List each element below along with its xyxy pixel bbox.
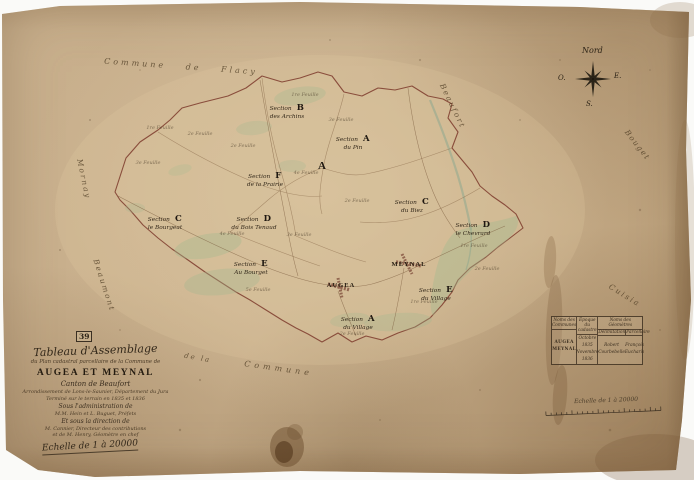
section-label-a-pin: Section A du Pin <box>336 127 370 152</box>
legend-col-communes: Noms des Communes AUGEA MEYNAL <box>552 317 577 364</box>
feuille-label: 3e Feuille <box>287 232 312 238</box>
section-letter-mark: A <box>318 160 326 172</box>
feuille-label: 2e Feuille <box>188 131 213 137</box>
feuille-label: 4e Feuille <box>294 170 319 176</box>
section-label-d-chevrard: Section D le Chevrard <box>455 213 490 238</box>
legend-col3-values: Robert Courbebelle François Eucharis <box>598 336 642 364</box>
section-label-d-bois-tenaud: Section D du Bois Tenaud <box>231 207 276 232</box>
legend-col3-header: Noms des Géomètres <box>598 317 642 330</box>
section-label-c-bourgeat: Section C le Bourgeat <box>148 207 182 232</box>
feuille-label: 1re Feuille <box>146 125 173 131</box>
section-label-a-village: Section A du Village <box>341 307 375 332</box>
survey-line: Terminé sur le terrain en 1835 et 1836 <box>18 396 173 403</box>
compass-north-label: Nord <box>582 46 603 55</box>
feuille-label: 4e Feuille <box>220 231 245 237</box>
direction-intro-line: Et sous la direction de <box>18 418 173 426</box>
canton-line: Canton de Beaufort <box>18 380 173 389</box>
title-block: Tableau d'Assemblage du Plan cadastral p… <box>18 344 173 439</box>
feuille-label: 2e Feuille <box>345 198 370 204</box>
compass-west-label: O. <box>558 74 566 82</box>
feuille-label: 3e Feuille <box>329 117 354 123</box>
section-label-e-bourget: Section E Au Bourget <box>234 252 268 277</box>
section-label-f-prairie: Section F de la Prairie <box>247 164 283 189</box>
place-label-meynal: MEYNAL <box>392 261 427 268</box>
legend-col1-header: Noms des Communes <box>552 317 576 330</box>
scanned-map-page: Commune de Flacy Beaufort Bouget Cuisia … <box>0 0 694 480</box>
surveyor-line: et de M. Henry, Géomètre en chef <box>18 432 173 439</box>
feuille-label: 5e Feuille <box>246 287 271 293</box>
admin-intro-line: Sous l'administration de <box>18 403 173 411</box>
legend-col1-values: AUGEA MEYNAL <box>552 330 576 364</box>
legend-col2-header: Époque du cadastre <box>577 317 597 335</box>
feuille-label: 2e Feuille <box>475 266 500 272</box>
legend-col-epoque: Époque du cadastre Octobre 1835 Novembre… <box>577 317 598 364</box>
feuille-label: 1re Feuille <box>460 243 487 249</box>
place-label-augea: AUGEA <box>327 282 355 289</box>
feuille-label: 1re Feuille <box>410 299 437 305</box>
arrondissement-line: Arrondissement de Lons-le-Saunier, Dépar… <box>18 389 173 396</box>
section-label-b-archins: Section B des Archins <box>270 96 305 121</box>
section-label-c-biez: Section C du Biez <box>395 190 429 215</box>
plate-number: 39 <box>76 331 92 342</box>
feuille-label: 1re Feuille <box>291 92 318 98</box>
admin-names-line: M.M. Hein et L. Buguet, Préfets <box>18 411 173 418</box>
legend-table: Noms des Communes AUGEA MEYNAL Époque du… <box>551 316 643 365</box>
legend-col-geometres: Noms des Géomètres Délimitation Parcella… <box>598 317 642 364</box>
feuille-label: 2e Feuille <box>340 331 365 337</box>
feuille-label: 3e Feuille <box>136 160 161 166</box>
compass-east-label: E. <box>614 72 621 80</box>
commune-name: AUGEA ET MEYNAL <box>18 367 173 380</box>
compass-south-label: S. <box>586 100 593 108</box>
legend-col2-values: Octobre 1835 Novembre 1836 <box>577 335 597 364</box>
feuille-label: 2e Feuille <box>231 143 256 149</box>
